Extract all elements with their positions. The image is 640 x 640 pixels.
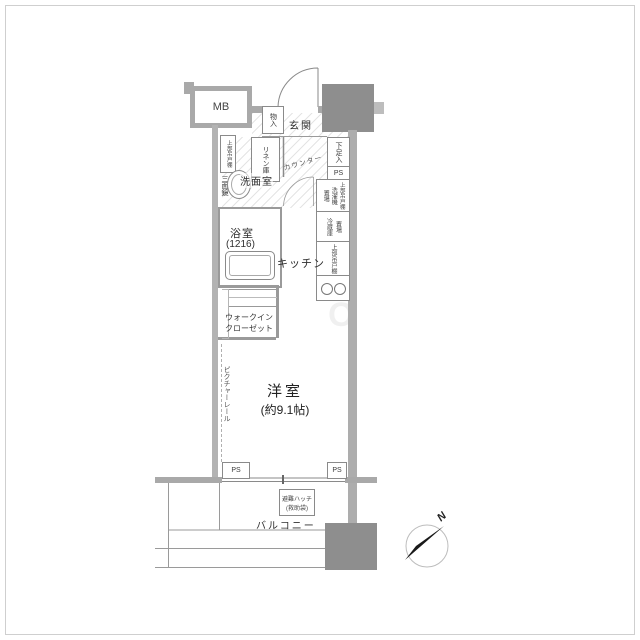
escape-hatch: 避難ハッチ (救助袋) (279, 489, 315, 516)
wic-label-line1: ウォークイン (220, 312, 278, 323)
wall-stub-right (374, 102, 384, 114)
main-room-size-label: (約9.1帖) (225, 401, 345, 418)
escape-hatch-label1: 避難ハッチ (282, 494, 312, 503)
bottom-wall-right (345, 477, 377, 483)
shoe-cabinet-label: 下足入 (335, 142, 342, 163)
fridge-label: 冷蔵庫 (326, 218, 332, 236)
entrance-storage-box: 物入 (262, 106, 284, 134)
fridge-place-label: 置場 (335, 221, 341, 233)
linen-closet-label: リネン庫 (262, 146, 269, 174)
main-room-label: 洋室 (225, 380, 345, 401)
floorplan-canvas: O MB 玄関 物入 カウンター (0, 0, 640, 640)
column-bottom-right (325, 523, 377, 570)
escape-hatch-label2: (救助袋) (286, 503, 308, 512)
kitchen-label: キッチン (277, 255, 325, 271)
stove (316, 275, 350, 301)
ps-label-bottom-right: PS (332, 467, 341, 474)
meter-box-room: MB (190, 86, 252, 128)
bathtub-inner (229, 255, 271, 276)
ps-shaft-bottom-right: PS (327, 462, 347, 479)
entrance-label: 玄関 (289, 117, 313, 132)
bathroom-size-label: (1216) (226, 239, 255, 250)
ps-shaft-bottom-left: PS (222, 462, 250, 479)
bottom-wall-left (155, 477, 222, 483)
burner-icon (321, 283, 333, 295)
wic-shelf-rail (229, 297, 277, 298)
wic-label-group: ウォークイン クローゼット (220, 312, 278, 334)
washer-upper-cabinet-label: 上部吊戸棚 (338, 182, 344, 210)
washroom-upper-cabinet: 上部吊戸棚 (220, 135, 236, 173)
image-border (5, 5, 635, 635)
ps-label-bottom-left: PS (231, 467, 240, 474)
washroom-label: 洗面室 (240, 173, 273, 188)
ps-label-top: PS (334, 170, 343, 177)
shoe-cabinet: 下足入 (327, 137, 350, 168)
bathtub (225, 251, 275, 280)
washroom-upper-cabinet-label: 上部吊戸棚 (225, 140, 231, 168)
burner-icon (334, 283, 346, 295)
mb-label: MB (213, 101, 230, 113)
wic-wall-top (218, 285, 279, 288)
wic-shelf (228, 289, 278, 307)
column-top-right (322, 84, 374, 132)
wic-label-line2: クローゼット (220, 323, 278, 334)
kitchen-upper-cabinet-label: 上部吊戸棚 (330, 244, 336, 274)
bathroom: 浴室 (1216) (218, 207, 282, 288)
left-outer-wall (212, 125, 218, 483)
washer-label: 洗濯機 (330, 187, 336, 205)
main-room-label-group: 洋室 (約9.1帖) (225, 380, 345, 418)
balcony-label: バルコニー (256, 517, 316, 532)
washer-place-label: 置場 (322, 190, 328, 202)
fridge-space: 冷蔵庫 置場 (316, 211, 350, 243)
entrance-storage-label: 物入 (270, 113, 277, 127)
washer-space: 置場 洗濯機 上部吊戸棚 (316, 179, 350, 213)
